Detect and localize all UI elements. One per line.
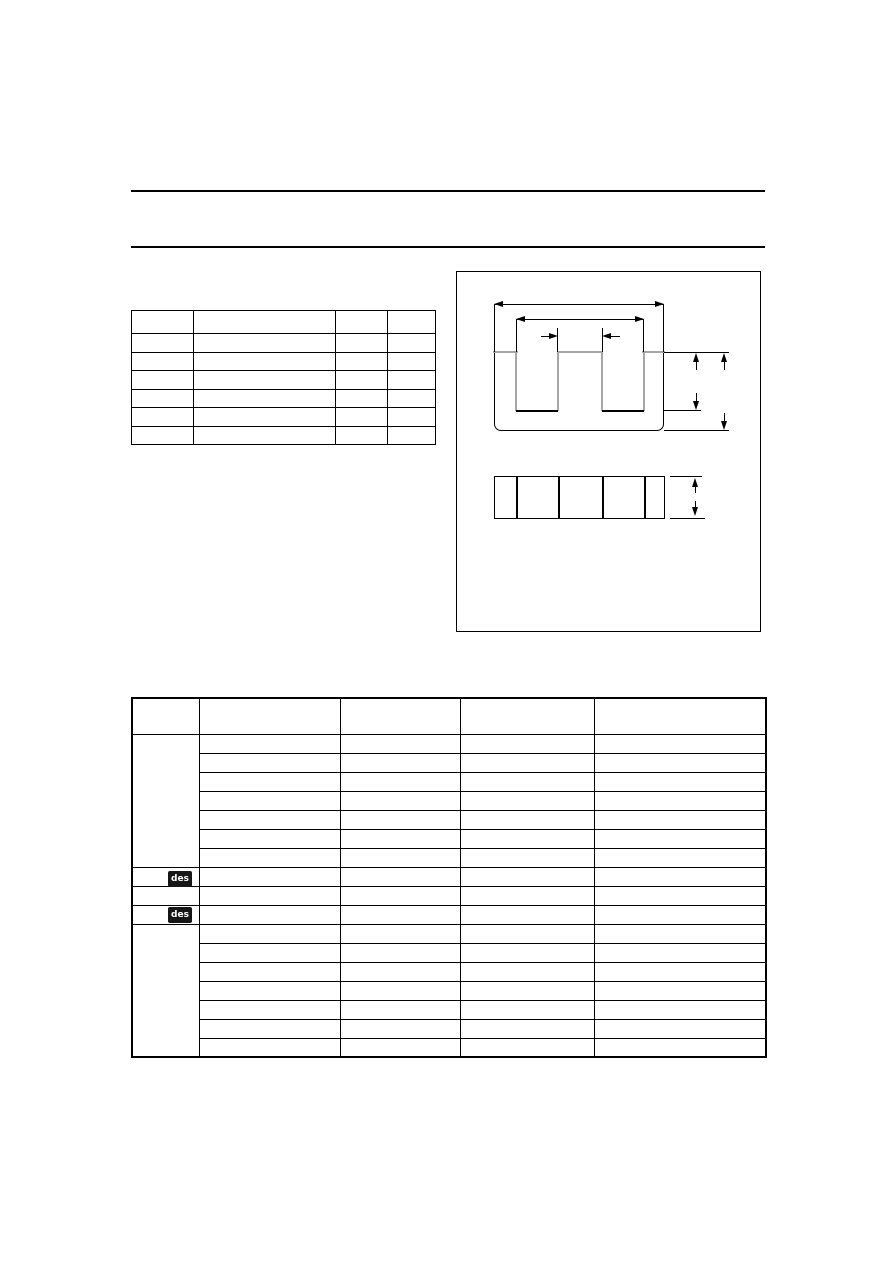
table-row <box>132 867 766 886</box>
side-view-divider <box>602 476 604 519</box>
table-cell <box>199 810 340 829</box>
table-row <box>132 389 436 408</box>
des-badge: des <box>168 871 192 887</box>
merged-cell <box>132 924 199 1057</box>
table-cell <box>594 810 766 829</box>
table-cell <box>340 829 460 848</box>
table-cell <box>340 698 460 734</box>
arrowhead-down-icon <box>692 507 698 516</box>
side-view-body <box>494 476 665 519</box>
dimension-table-body <box>132 698 766 1057</box>
table-cell <box>460 867 594 886</box>
table-cell <box>460 810 594 829</box>
table-cell <box>388 426 436 445</box>
des-badge: des <box>168 907 192 923</box>
table-row <box>132 352 436 371</box>
table-cell <box>594 886 766 905</box>
table-row <box>132 1019 766 1038</box>
table-cell <box>388 389 436 408</box>
table-cell <box>594 867 766 886</box>
table-cell <box>594 1000 766 1019</box>
table-cell <box>132 334 194 353</box>
table-cell <box>132 426 194 445</box>
table-cell <box>460 962 594 981</box>
table-row <box>132 962 766 981</box>
table-cell <box>340 810 460 829</box>
table-cell <box>594 981 766 1000</box>
table-cell <box>460 981 594 1000</box>
package-side-view <box>457 272 760 631</box>
table-cell <box>594 924 766 943</box>
table-row <box>132 905 766 924</box>
side-view-divider <box>558 476 560 519</box>
table-cell <box>340 1000 460 1019</box>
table-row <box>132 848 766 867</box>
table-cell <box>460 1000 594 1019</box>
table-cell <box>199 1038 340 1057</box>
table-cell <box>594 1019 766 1038</box>
table-row <box>132 334 436 353</box>
table-cell <box>336 371 388 390</box>
table-row <box>132 810 766 829</box>
table-cell <box>194 408 336 427</box>
table-cell <box>460 924 594 943</box>
extension-line <box>670 518 705 519</box>
table-cell <box>340 981 460 1000</box>
table-cell <box>132 886 199 905</box>
table-cell <box>594 772 766 791</box>
table-cell <box>199 867 340 886</box>
parameter-table-body <box>132 311 436 445</box>
table-cell <box>199 886 340 905</box>
table-cell <box>460 791 594 810</box>
table-cell <box>594 943 766 962</box>
table-cell <box>460 943 594 962</box>
table-cell <box>340 867 460 886</box>
table-cell <box>594 734 766 753</box>
page: des des <box>0 0 893 1263</box>
table-cell <box>199 848 340 867</box>
table-cell <box>199 943 340 962</box>
table-cell <box>132 408 194 427</box>
table-cell <box>336 352 388 371</box>
arrowhead-up-icon <box>692 478 698 487</box>
table-cell <box>194 352 336 371</box>
table-cell <box>340 753 460 772</box>
side-view-divider <box>516 476 518 519</box>
dimension-line <box>695 487 696 493</box>
table-cell <box>199 791 340 810</box>
table-cell <box>594 848 766 867</box>
header-rule-bottom <box>131 246 765 248</box>
table-row <box>132 924 766 943</box>
table-cell <box>460 734 594 753</box>
table-cell <box>340 1019 460 1038</box>
table-cell <box>460 772 594 791</box>
table-cell <box>340 848 460 867</box>
table-row <box>132 1038 766 1057</box>
table-cell <box>340 905 460 924</box>
table-cell <box>199 924 340 943</box>
table-cell <box>340 772 460 791</box>
table-row <box>132 426 436 445</box>
table-cell <box>199 734 340 753</box>
table-cell <box>199 981 340 1000</box>
table-row <box>132 981 766 1000</box>
table-cell <box>199 962 340 981</box>
table-cell <box>460 753 594 772</box>
table-cell <box>340 924 460 943</box>
table-cell <box>460 886 594 905</box>
table-cell <box>594 905 766 924</box>
table-row <box>132 371 436 390</box>
table-cell <box>199 1000 340 1019</box>
extension-line <box>670 476 702 477</box>
table-cell <box>340 886 460 905</box>
table-row <box>132 734 766 753</box>
table-cell <box>199 753 340 772</box>
table-cell <box>132 352 194 371</box>
table-row <box>132 829 766 848</box>
table-cell <box>594 753 766 772</box>
table-row <box>132 772 766 791</box>
table-cell <box>132 389 194 408</box>
dimension-table <box>131 697 767 1058</box>
table-cell <box>460 698 594 734</box>
table-cell <box>460 1038 594 1057</box>
table-cell <box>336 426 388 445</box>
table-cell <box>594 829 766 848</box>
table-cell <box>340 962 460 981</box>
table-cell <box>460 829 594 848</box>
table-row <box>132 753 766 772</box>
parameter-table <box>131 310 436 445</box>
table-cell <box>336 408 388 427</box>
table-cell <box>199 905 340 924</box>
table-cell <box>132 311 194 334</box>
table-row <box>132 1000 766 1019</box>
table-cell <box>132 371 194 390</box>
package-outline-figure <box>456 271 761 632</box>
table-row <box>132 943 766 962</box>
table-cell <box>388 352 436 371</box>
table-cell <box>460 1019 594 1038</box>
table-row <box>132 408 436 427</box>
table-cell <box>388 334 436 353</box>
table-cell <box>594 1038 766 1057</box>
table-row <box>132 698 766 734</box>
table-cell <box>388 371 436 390</box>
table-cell <box>388 408 436 427</box>
table-cell <box>199 1019 340 1038</box>
table-cell <box>336 311 388 334</box>
table-row <box>132 886 766 905</box>
table-cell <box>388 311 436 334</box>
table-cell <box>194 389 336 408</box>
table-cell <box>594 698 766 734</box>
table-cell <box>199 772 340 791</box>
header-rule-top <box>131 190 765 192</box>
table-cell <box>340 734 460 753</box>
table-row <box>132 311 436 334</box>
merged-cell <box>132 734 199 867</box>
table-cell <box>594 791 766 810</box>
table-cell <box>194 311 336 334</box>
table-cell <box>460 905 594 924</box>
table-cell <box>132 698 199 734</box>
table-cell <box>340 943 460 962</box>
table-cell <box>199 829 340 848</box>
table-cell <box>340 791 460 810</box>
table-cell <box>340 1038 460 1057</box>
table-cell <box>194 334 336 353</box>
table-cell <box>336 389 388 408</box>
table-cell <box>336 334 388 353</box>
table-cell <box>194 371 336 390</box>
side-view-divider <box>644 476 646 519</box>
table-cell <box>199 698 340 734</box>
table-cell <box>194 426 336 445</box>
table-cell <box>460 848 594 867</box>
table-row <box>132 791 766 810</box>
table-cell <box>594 962 766 981</box>
